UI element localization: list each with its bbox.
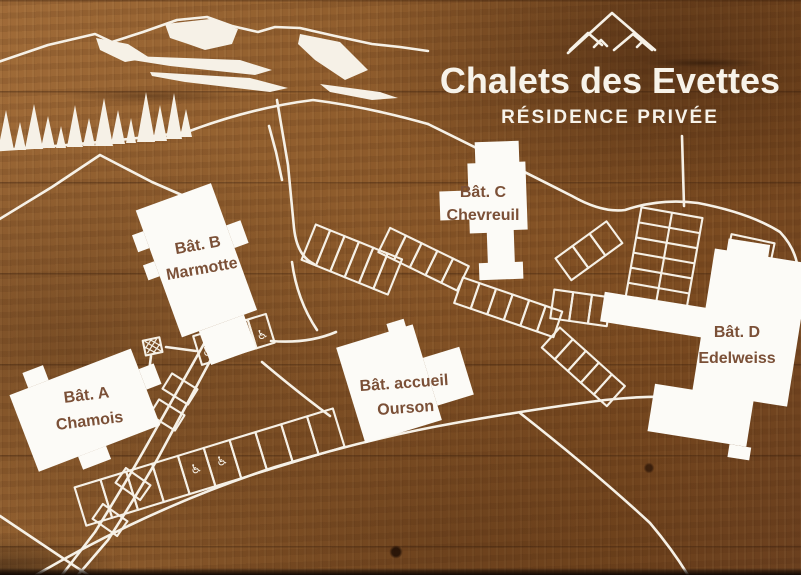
parking-space [556, 246, 589, 280]
parking-row-roadside-chevreuil [556, 221, 623, 280]
hatched-square [143, 337, 163, 355]
parking-space [441, 259, 469, 291]
parking-space [345, 242, 374, 283]
road-vertical-link [682, 136, 684, 206]
site-map: Chalets des Evettes RÉSIDENCE PRIVÉE ♿ ♿… [0, 0, 801, 575]
snow-patch-icon [150, 72, 288, 92]
wood-sign-board: Chalets des Evettes RÉSIDENCE PRIVÉE ♿ ♿… [0, 0, 801, 575]
road-from-mountain [277, 100, 314, 264]
wheelchair-icon: ♿ [255, 327, 271, 345]
sign-title: Chalets des Evettes [440, 60, 780, 101]
road-bottomleft-diagonal [0, 516, 88, 575]
road-ourson-west [292, 262, 317, 330]
building-shape [136, 183, 257, 337]
parking-space [316, 230, 345, 271]
parking-space [330, 236, 359, 277]
parking-space [307, 408, 345, 454]
building-edelweiss: Bât. D Edelweiss [582, 221, 801, 465]
sign-subtitle: RÉSIDENCE PRIVÉE [501, 106, 719, 128]
parking-ladder-segment-c [542, 328, 625, 407]
parking-space [373, 254, 402, 295]
building-shape [9, 349, 160, 472]
road-from-mountain-2 [269, 126, 282, 180]
parking-grid-lines [625, 207, 702, 308]
mountain-ridge [0, 17, 428, 100]
parking-space [573, 234, 606, 268]
wheelchair-icon: ♿ [214, 453, 230, 471]
wheelchair-icon: ♿ [188, 461, 204, 479]
building-shape [727, 444, 751, 460]
parking-grid-edelweiss [625, 207, 702, 308]
road-marmotte-ourson-top [271, 332, 336, 342]
road-parking-hatch-link [166, 347, 196, 351]
board-bottom-edge [0, 568, 801, 575]
mountain-peaks-icon [568, 13, 655, 53]
building-label-line2: Chevreuil [447, 207, 520, 224]
building-label-line2: Edelweiss [698, 350, 775, 367]
parking-ladder-segment-a [378, 228, 468, 291]
pine-trees [0, 92, 192, 150]
road-hillline [187, 100, 428, 132]
snow-patch-icon [320, 84, 398, 100]
building-label-line1: Bât. C [460, 184, 507, 201]
parking-space [589, 221, 622, 255]
road-marmotte-ourson-low [262, 362, 330, 416]
snow-patch-icon [96, 38, 150, 62]
parking-space [537, 306, 562, 337]
road-bottom-branch [520, 413, 688, 575]
parking-ladder-segment-b [454, 277, 562, 337]
building-label-line1: Bât. D [714, 324, 760, 341]
resort-logo [568, 13, 655, 53]
